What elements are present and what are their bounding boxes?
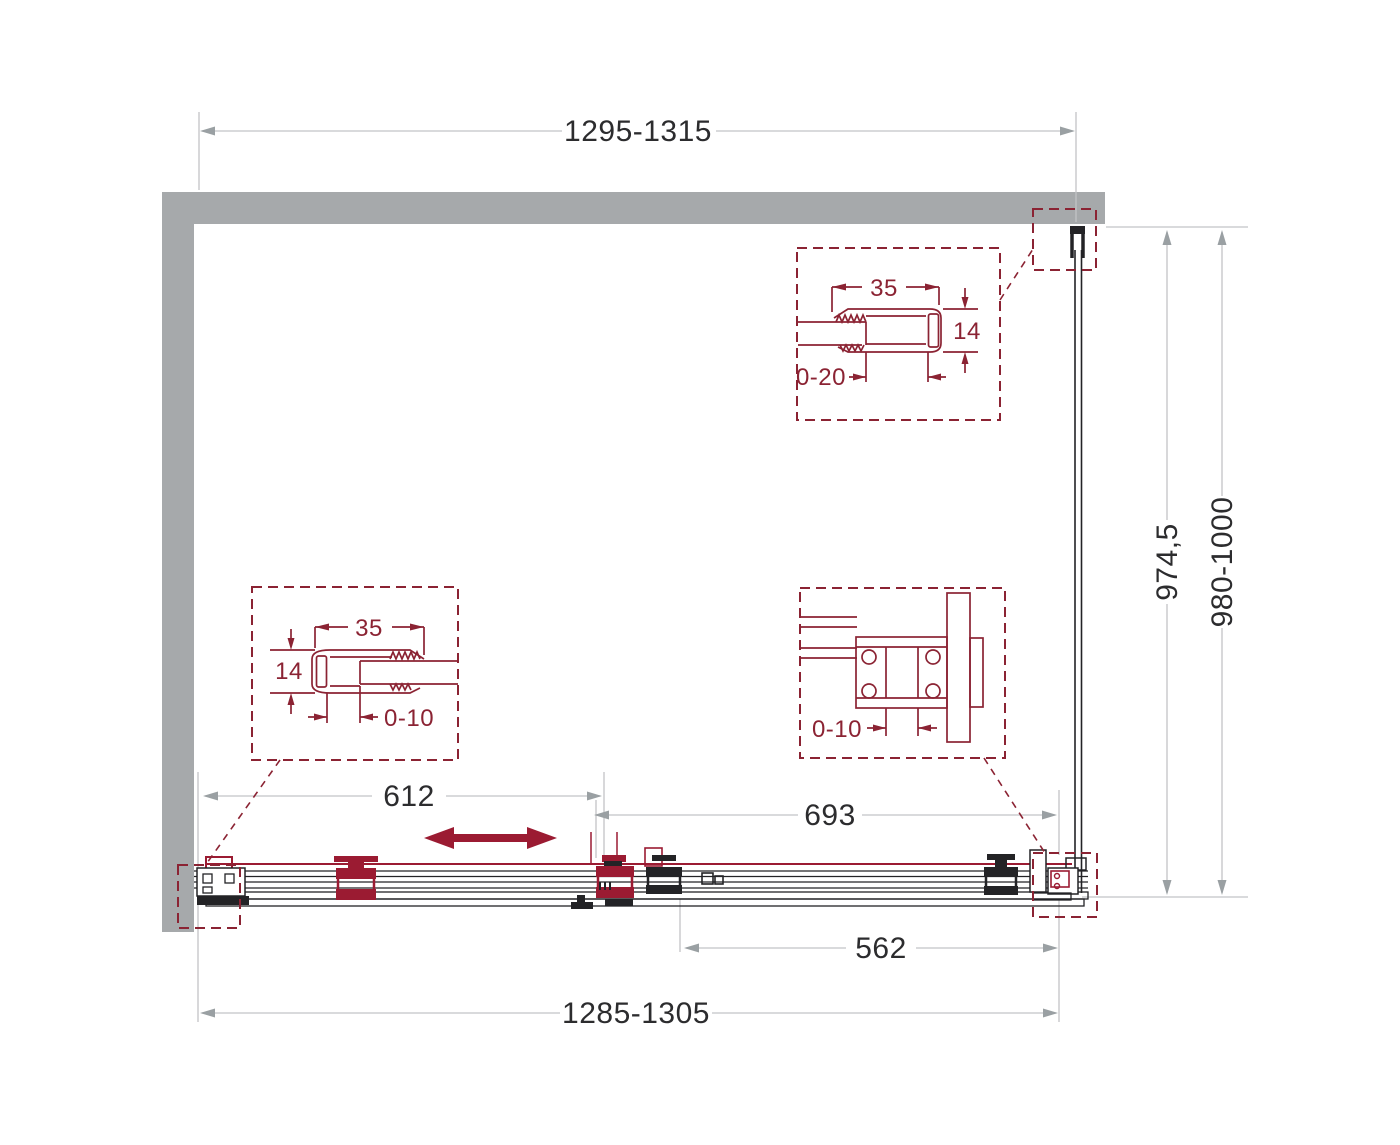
leader-bottom-right: [984, 758, 1045, 853]
technical-drawing: 1295-1315 974,5 980-1000 612 693: [0, 0, 1400, 1145]
detail-callouts: [178, 209, 1097, 928]
detail-b-width-label: 35: [355, 615, 383, 642]
detail-b-adjust-label: 0-10: [384, 705, 434, 732]
roller-carriage-right: [984, 854, 1018, 895]
detail-bottom-right-bracket: 0-10: [800, 588, 1005, 758]
corner-connector: [1030, 850, 1086, 900]
leader-bottom-left: [207, 760, 280, 863]
left-wall: [162, 192, 194, 932]
bottom-width-label: 1285-1305: [562, 997, 710, 1030]
detail-b-height-label: 14: [275, 658, 303, 685]
bottom-rail-assembly: [194, 832, 1088, 909]
dimension-fixed-panel: 693: [594, 790, 1059, 858]
top-wall: [162, 192, 1105, 224]
depth-overall-label: 980-1000: [1206, 497, 1239, 628]
depth-inner-label: 974,5: [1151, 523, 1184, 601]
roller-carriage-left: [334, 856, 378, 900]
detail-top-right-profile: 35 14 0-20: [796, 248, 1000, 420]
detail-a-height-label: 14: [953, 318, 981, 345]
dimension-opening: 562: [680, 899, 1059, 1022]
detail-c-adjust-label: 0-10: [812, 716, 862, 743]
dimension-depth: 974,5 980-1000: [1082, 227, 1248, 897]
top-width-label: 1295-1315: [564, 115, 712, 148]
drawing-canvas: 1295-1315 974,5 980-1000 612 693: [0, 0, 1400, 1145]
leader-top-right: [1000, 246, 1035, 300]
detail-bottom-left-profile: 35 14 0-10: [252, 587, 458, 760]
door-panel-label: 612: [383, 780, 435, 813]
detail-a-width-label: 35: [870, 275, 898, 302]
dimension-door-panel: 612: [198, 772, 604, 1022]
fixed-panel-label: 693: [804, 799, 856, 832]
side-glass-panel: [1070, 226, 1085, 893]
detail-a-adjust-label: 0-20: [796, 364, 846, 391]
dimension-bottom-width: 1285-1305: [200, 997, 1058, 1030]
opening-label: 562: [855, 932, 907, 965]
slide-direction-arrow: [424, 827, 557, 849]
wall-profile-clamp: [1070, 226, 1085, 234]
